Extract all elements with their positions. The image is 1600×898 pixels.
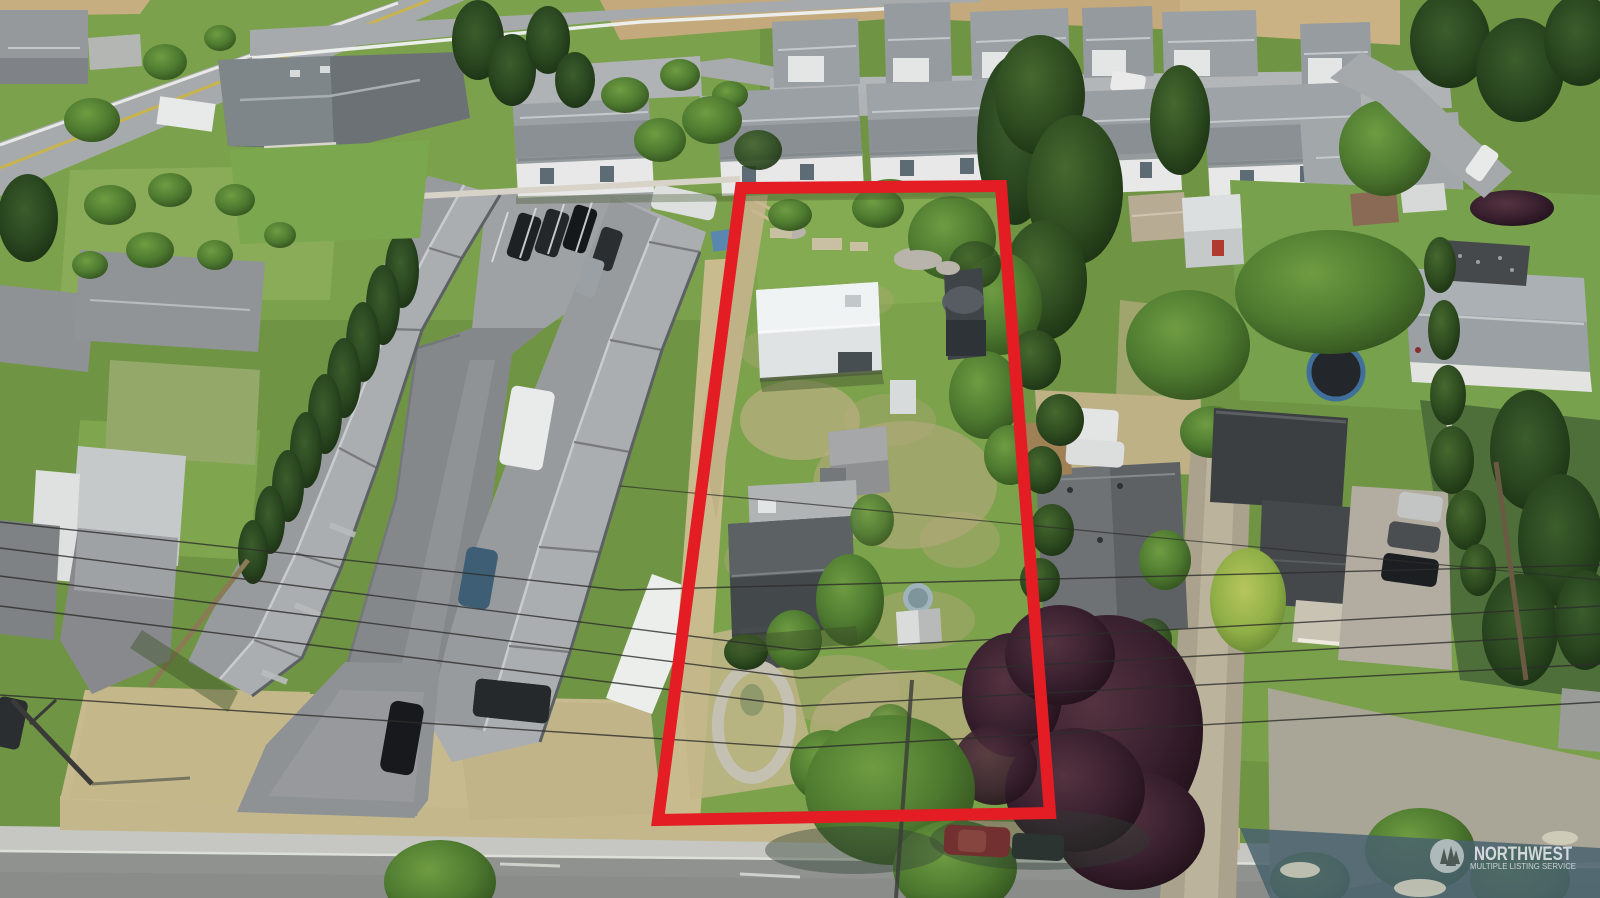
svg-text:MULTIPLE LISTING SERVICE: MULTIPLE LISTING SERVICE bbox=[1470, 862, 1576, 871]
